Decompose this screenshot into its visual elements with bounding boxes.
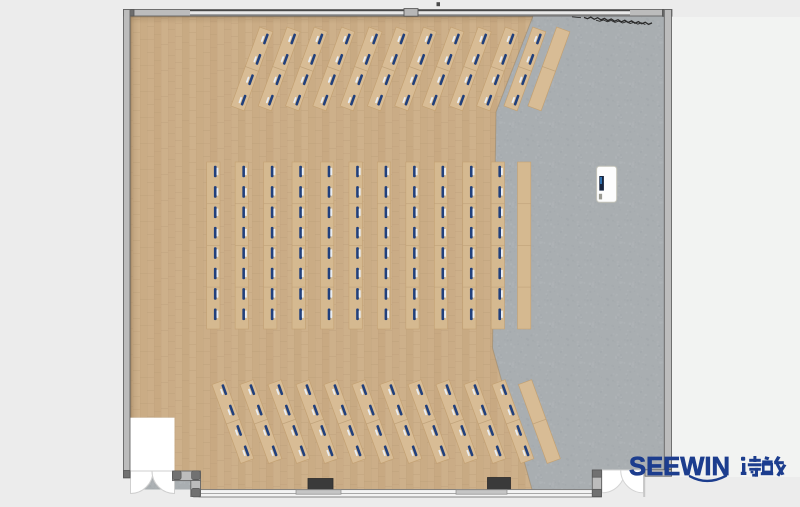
svg-text:SEEWIN: SEEWIN xyxy=(629,453,730,481)
